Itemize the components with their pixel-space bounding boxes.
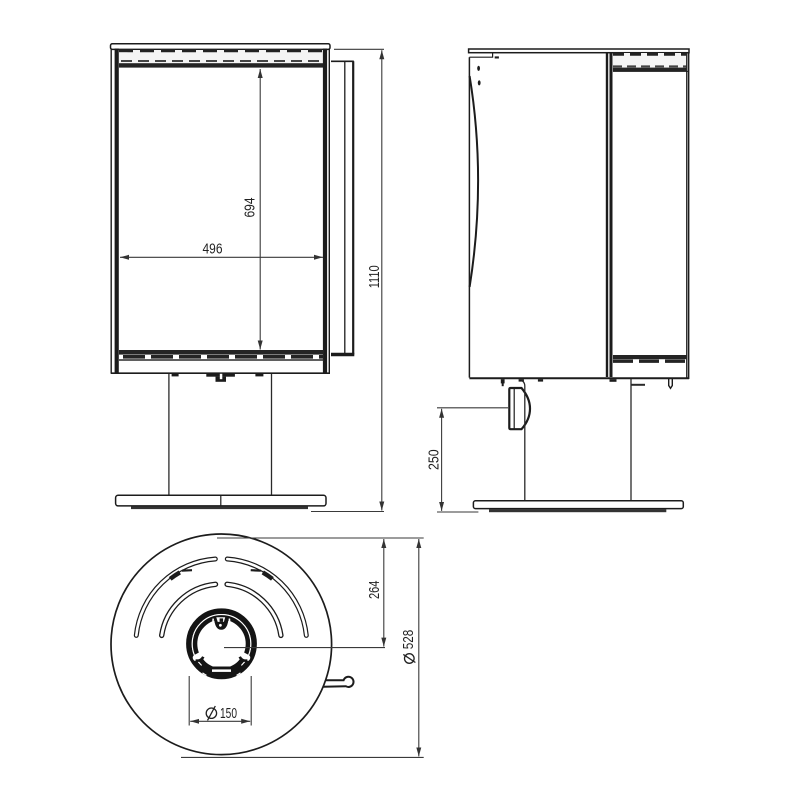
svg-text:250: 250: [426, 449, 442, 470]
svg-text:694: 694: [243, 198, 259, 218]
svg-text:528: 528: [401, 630, 417, 650]
svg-text:496: 496: [203, 242, 223, 258]
svg-text:150: 150: [220, 706, 237, 722]
svg-text:264: 264: [367, 581, 383, 600]
svg-text:1110: 1110: [367, 265, 383, 288]
